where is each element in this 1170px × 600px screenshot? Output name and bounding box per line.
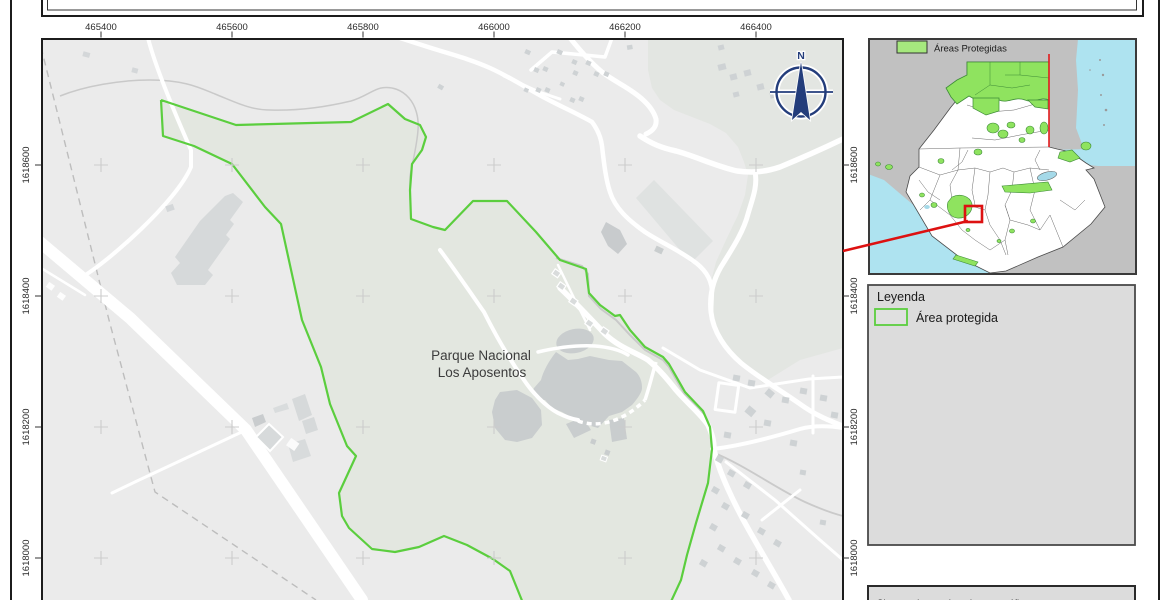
svg-text:1618400: 1618400	[21, 278, 32, 315]
svg-text:1618200: 1618200	[21, 409, 32, 446]
svg-text:N: N	[797, 50, 805, 62]
svg-text:Parque Nacional: Parque Nacional	[431, 348, 531, 363]
svg-text:Leyenda: Leyenda	[877, 290, 925, 304]
svg-text:1618000: 1618000	[849, 540, 860, 577]
svg-text:Área protegida: Área protegida	[916, 310, 998, 325]
svg-text:465600: 465600	[216, 22, 248, 33]
svg-text:1618400: 1618400	[849, 278, 860, 315]
svg-text:466200: 466200	[609, 22, 641, 33]
svg-text:1618000: 1618000	[21, 540, 32, 577]
svg-text:466400: 466400	[740, 22, 772, 33]
svg-text:1618600: 1618600	[21, 147, 32, 184]
svg-text:Los Aposentos: Los Aposentos	[438, 365, 527, 380]
svg-text:465400: 465400	[85, 22, 117, 33]
svg-text:1618600: 1618600	[849, 147, 860, 184]
svg-text:1618200: 1618200	[849, 409, 860, 446]
svg-text:466000: 466000	[478, 22, 510, 33]
svg-text:Áreas Protegidas: Áreas Protegidas	[934, 44, 1007, 55]
svg-text:465800: 465800	[347, 22, 379, 33]
